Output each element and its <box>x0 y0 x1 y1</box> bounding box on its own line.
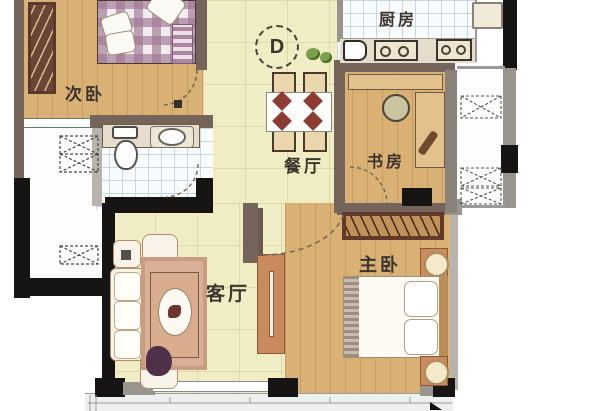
bed-headboard <box>439 277 447 357</box>
side-table <box>113 240 141 268</box>
wardrobe-master <box>342 212 444 240</box>
wall-study-left <box>334 60 345 213</box>
wall-bathroom-left <box>92 128 102 206</box>
toilet-icon <box>114 140 138 170</box>
wall-balcony-top-line <box>457 66 505 69</box>
floor-plan: 次卧 D 餐厅 厨房 书房 <box>0 0 600 411</box>
wall-pier-bottom-center <box>268 378 298 397</box>
wall-kitchen-divider <box>337 0 343 42</box>
sink-basin-icon <box>158 128 186 146</box>
lamp-icon <box>424 252 449 277</box>
desk-chair-icon <box>382 94 410 122</box>
burner-icon <box>441 45 451 55</box>
wall-balcony-pier <box>501 145 518 173</box>
sofa-cushion <box>114 301 141 330</box>
plant-icon <box>306 48 320 60</box>
living-label: 客厅 <box>200 279 256 306</box>
burner-icon <box>456 45 466 55</box>
pillow-icon <box>404 281 438 317</box>
study-cabinet <box>402 188 432 206</box>
floral-decor-icon <box>168 305 181 318</box>
bedroom2-window <box>24 118 90 128</box>
sofa-icon <box>110 268 145 361</box>
tv-cabinet <box>257 254 285 354</box>
unit-type-marker: D <box>255 25 299 69</box>
table-medallion <box>158 288 192 336</box>
study-label: 书房 <box>360 148 412 172</box>
plant-icon <box>320 52 332 63</box>
toilet-tank-icon <box>112 126 138 139</box>
side-balcony-floor <box>455 66 505 208</box>
wall-balcony-bottom-line <box>457 205 505 208</box>
wall-left-upper <box>14 0 24 180</box>
bed-runner-icon <box>172 24 193 64</box>
kitchen-sink-icon <box>343 40 367 61</box>
wall-bedroom2-right <box>196 0 207 70</box>
wall-master-right <box>450 215 458 390</box>
burner-icon <box>398 46 409 57</box>
wall-storage-bottom <box>16 278 102 296</box>
storage-area-floor <box>22 118 102 282</box>
burner-icon <box>380 46 391 57</box>
tv-icon <box>269 271 274 337</box>
study-desk <box>415 92 445 168</box>
fridge-icon <box>472 2 503 29</box>
wall-balcony-right <box>503 68 516 208</box>
sofa-cushion <box>114 272 141 301</box>
wall-study-right <box>445 70 457 213</box>
dining-label: 餐厅 <box>278 152 330 177</box>
secondary-bedroom-label: 次卧 <box>40 80 130 105</box>
wall-bathroom-right <box>196 178 213 206</box>
wall-hall-stub <box>243 203 258 263</box>
wall-pier-bottom-left <box>95 378 125 397</box>
lamp-icon <box>424 360 449 385</box>
sofa-cushion <box>114 330 141 359</box>
pillow-icon <box>404 319 438 355</box>
master-bedroom-label: 主卧 <box>352 251 408 277</box>
bed-master <box>343 276 448 358</box>
floor-plant-icon <box>146 346 172 376</box>
kitchen-label: 厨房 <box>372 6 424 30</box>
decor-icon <box>121 250 131 260</box>
wall-outer-topright <box>503 0 517 70</box>
study-shelf <box>348 74 443 90</box>
bed-foot-blanket <box>344 277 359 357</box>
stove-icon <box>374 40 418 61</box>
kitchen-appliance-icon <box>436 39 472 61</box>
